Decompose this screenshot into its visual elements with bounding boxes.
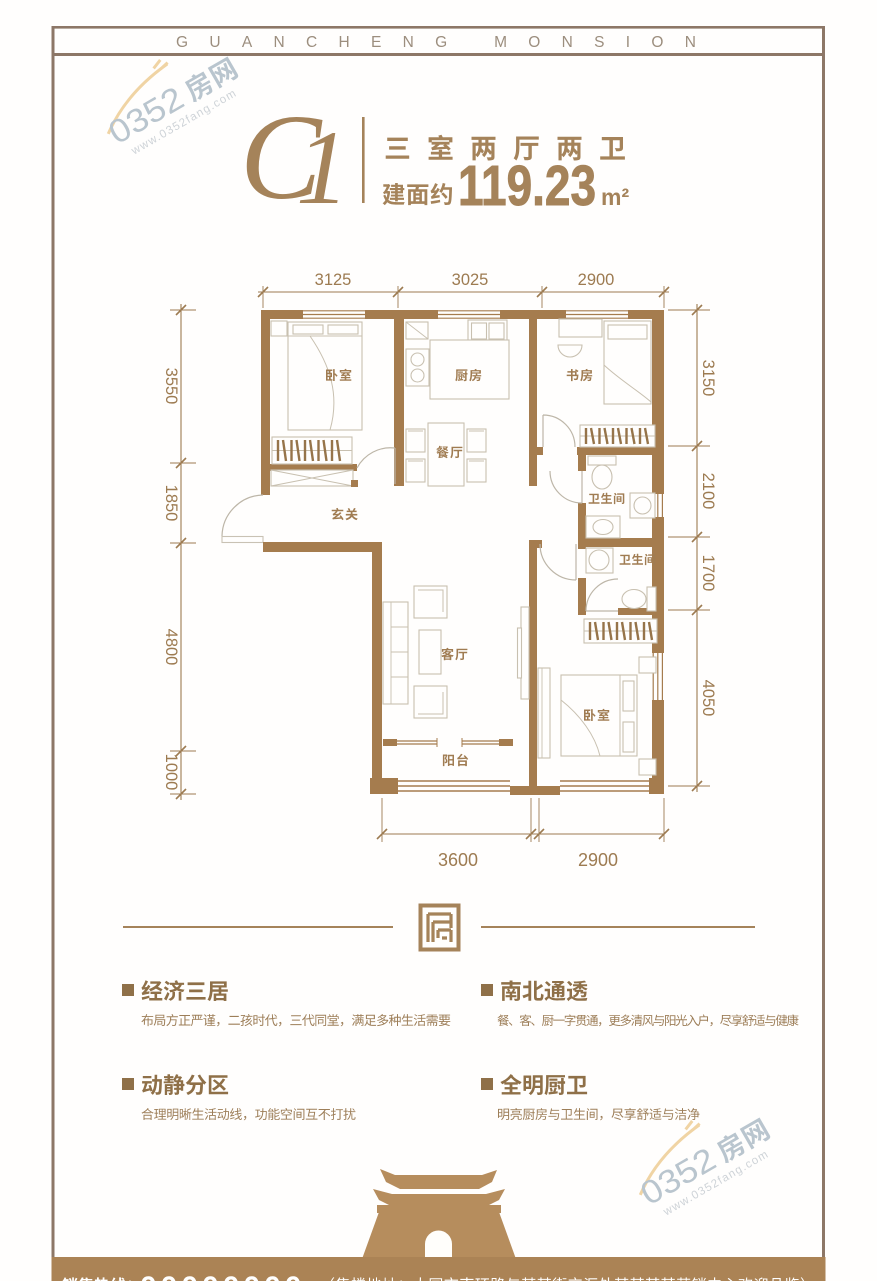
svg-text:1850: 1850 [162,485,180,522]
svg-text:1: 1 [296,109,349,226]
svg-text:119.23: 119.23 [458,154,596,218]
svg-text:2900: 2900 [578,850,618,870]
svg-text:2900: 2900 [578,271,615,289]
svg-text:4800: 4800 [162,629,180,666]
svg-text:GUANCHENG MONSION: GUANCHENG MONSION [176,34,717,51]
svg-text:00000000: 00000000 [140,1271,305,1281]
svg-text:3600: 3600 [438,850,478,870]
svg-text:1700: 1700 [699,555,717,592]
svg-text:4050: 4050 [699,680,717,717]
svg-text:3150: 3150 [699,360,717,397]
svg-text:3025: 3025 [452,271,489,289]
svg-text:3125: 3125 [315,271,352,289]
svg-text:1000: 1000 [162,754,180,791]
svg-text:m²: m² [601,184,629,210]
svg-text:3550: 3550 [162,368,180,405]
svg-text:2100: 2100 [699,473,717,510]
